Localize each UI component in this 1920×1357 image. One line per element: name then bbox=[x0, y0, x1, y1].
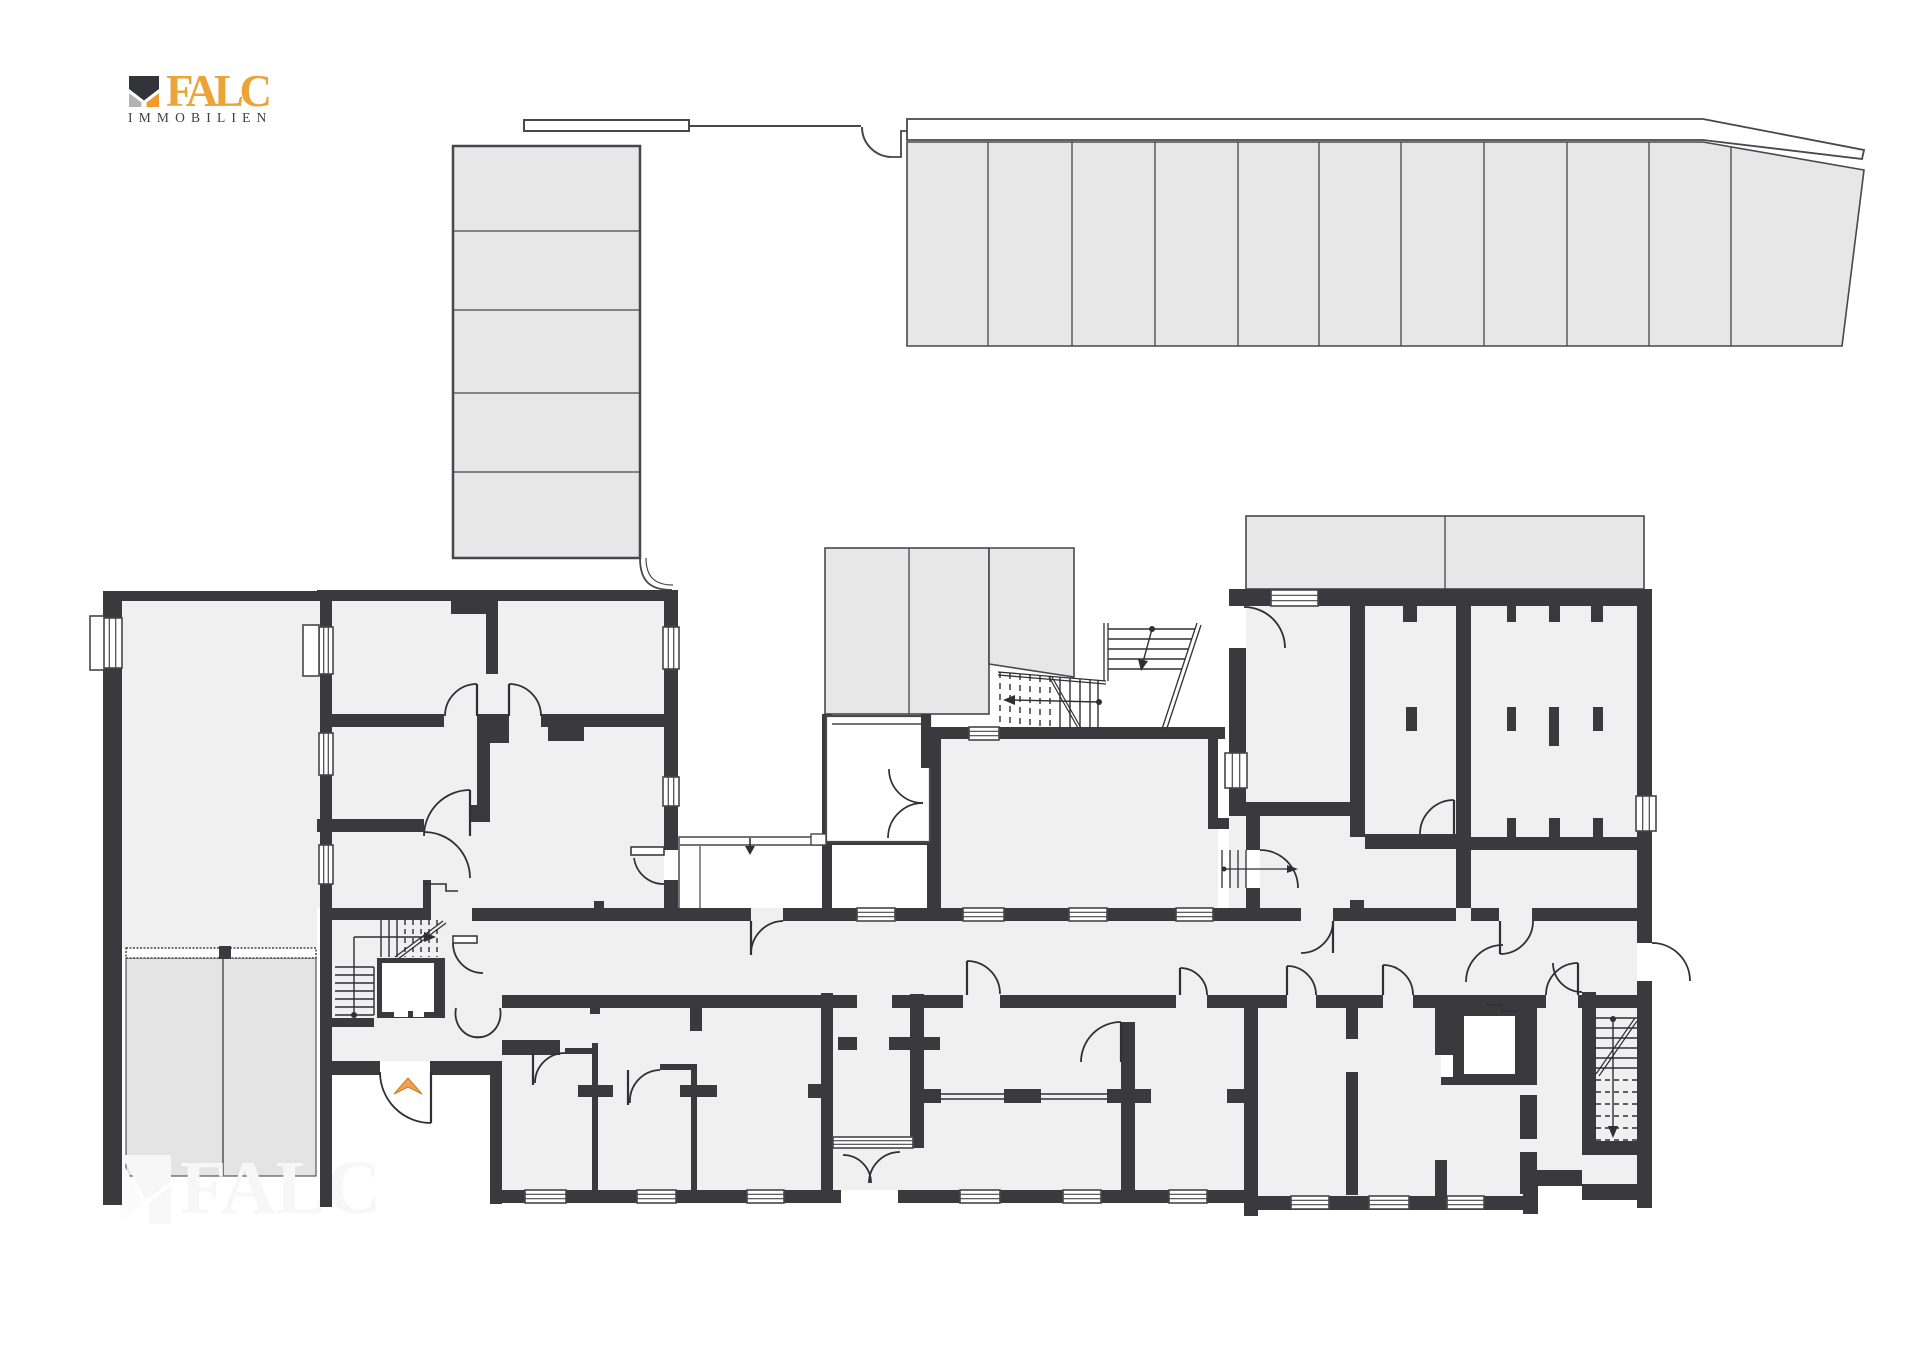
svg-text:FALC: FALC bbox=[180, 1146, 381, 1230]
svg-text:IMMOBILIEN: IMMOBILIEN bbox=[128, 110, 273, 125]
svg-text:FALC: FALC bbox=[166, 66, 272, 116]
